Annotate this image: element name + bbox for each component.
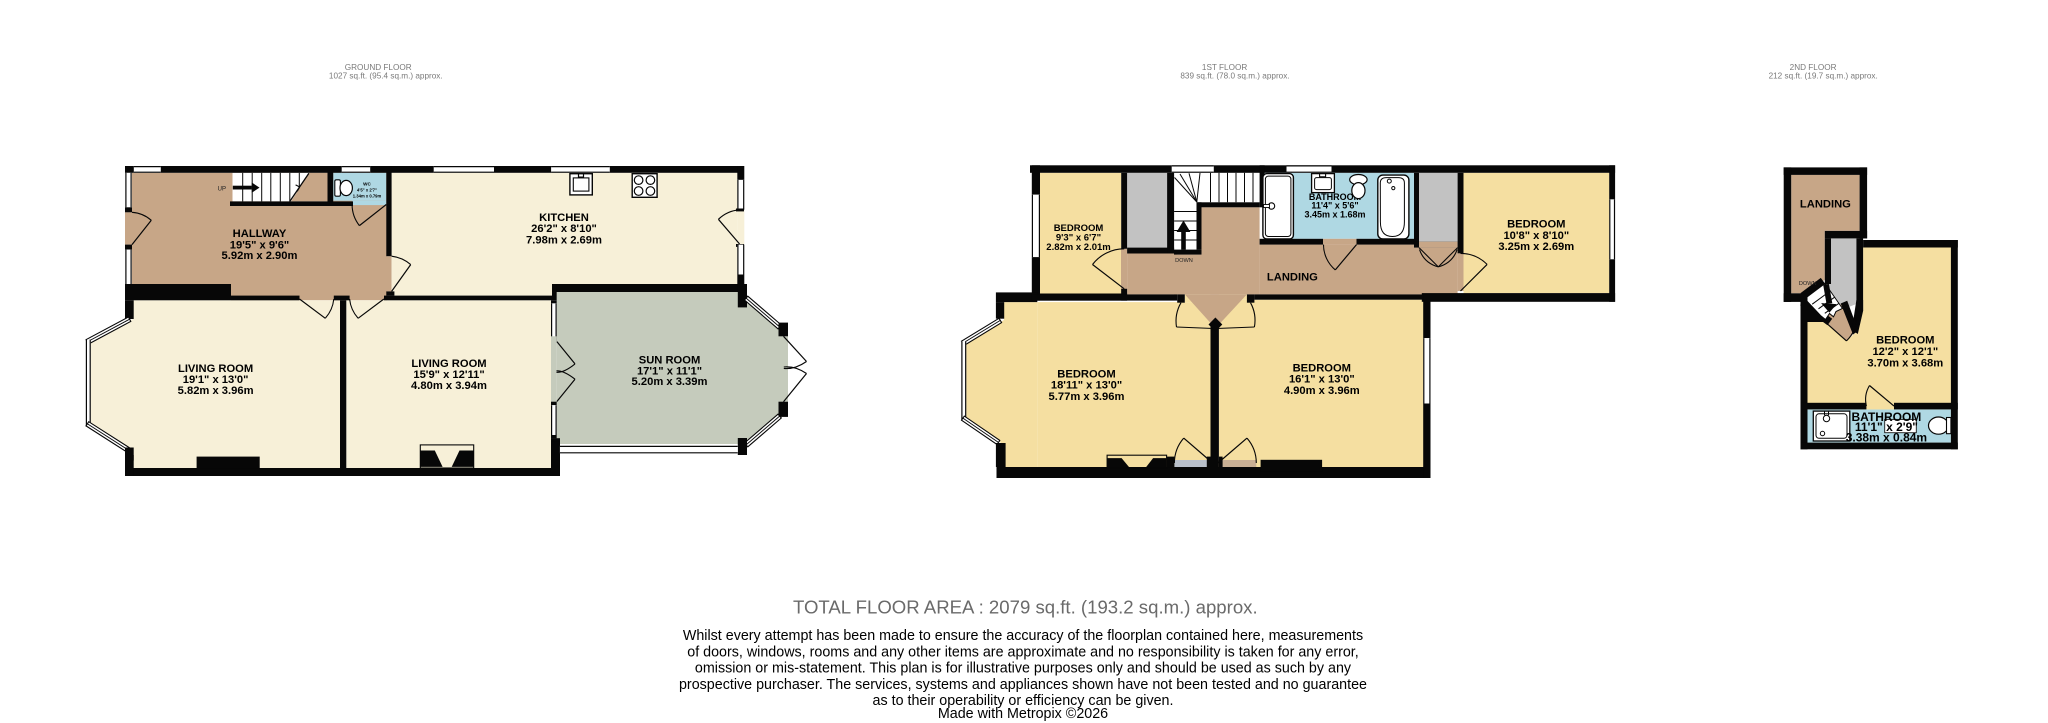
svg-text:1.34m x 0.79m: 1.34m x 0.79m [353, 194, 382, 199]
svg-text:7.98m x 2.69m: 7.98m x 2.69m [526, 234, 602, 246]
svg-text:3.45m x 1.68m: 3.45m x 1.68m [1304, 210, 1365, 220]
svg-text:10'8" x 8'10": 10'8" x 8'10" [1503, 230, 1569, 242]
svg-text:1027 sq.ft. (95.4 sq.m.) appro: 1027 sq.ft. (95.4 sq.m.) approx. [329, 71, 443, 80]
svg-text:DOWN: DOWN [1175, 258, 1193, 264]
svg-text:WC: WC [363, 182, 371, 187]
svg-text:LIVING ROOM: LIVING ROOM [178, 363, 253, 375]
svg-text:BEDROOM: BEDROOM [1293, 363, 1351, 375]
svg-text:18'11" x 13'0": 18'11" x 13'0" [1051, 380, 1122, 392]
svg-text:5.77m x 3.96m: 5.77m x 3.96m [1049, 391, 1125, 403]
svg-text:4'5" x 2'7": 4'5" x 2'7" [357, 188, 377, 193]
svg-text:3.25m x 2.69m: 3.25m x 2.69m [1498, 241, 1574, 253]
svg-text:26'2" x 8'10": 26'2" x 8'10" [531, 223, 597, 235]
svg-text:BEDROOM: BEDROOM [1057, 368, 1115, 380]
svg-text:12'2" x 12'1": 12'2" x 12'1" [1872, 346, 1938, 358]
svg-text:LANDING: LANDING [1267, 271, 1318, 283]
svg-text:BEDROOM: BEDROOM [1876, 335, 1934, 347]
svg-text:of doors, windows, rooms and a: of doors, windows, rooms and any other i… [687, 644, 1359, 660]
svg-text:prospective purchaser. The ser: prospective purchaser. The services, sys… [679, 677, 1367, 693]
svg-text:4.80m x 3.94m: 4.80m x 3.94m [411, 380, 487, 392]
svg-text:2.82m x 2.01m: 2.82m x 2.01m [1046, 242, 1110, 253]
svg-text:16'1" x 13'0": 16'1" x 13'0" [1289, 374, 1355, 386]
svg-text:3.38m x 0.84m: 3.38m x 0.84m [1846, 431, 1927, 445]
svg-text:Made with Metropix ©2026: Made with Metropix ©2026 [938, 706, 1108, 722]
svg-text:DOWN: DOWN [1799, 281, 1817, 287]
svg-text:UP: UP [218, 186, 226, 192]
svg-text:5.20m x 3.39m: 5.20m x 3.39m [632, 376, 708, 388]
svg-text:212 sq.ft. (19.7 sq.m.) approx: 212 sq.ft. (19.7 sq.m.) approx. [1769, 71, 1878, 80]
svg-text:HALLWAY: HALLWAY [233, 228, 287, 240]
svg-text:Whilst every attempt has been: Whilst every attempt has been made to en… [683, 628, 1363, 644]
svg-text:LIVING ROOM: LIVING ROOM [411, 358, 486, 370]
svg-text:4.90m x 3.96m: 4.90m x 3.96m [1284, 385, 1360, 397]
svg-text:5.82m x 3.96m: 5.82m x 3.96m [178, 385, 254, 397]
svg-text:LANDING: LANDING [1800, 199, 1851, 211]
svg-text:5.92m x 2.90m: 5.92m x 2.90m [222, 250, 298, 262]
svg-text:TOTAL FLOOR AREA : 2079 sq.ft.: TOTAL FLOOR AREA : 2079 sq.ft. (193.2 sq… [793, 597, 1258, 618]
svg-text:3.70m x 3.68m: 3.70m x 3.68m [1867, 358, 1943, 370]
svg-text:KITCHEN: KITCHEN [539, 212, 589, 224]
svg-text:BEDROOM: BEDROOM [1507, 219, 1565, 231]
svg-text:omission or mis-statement. Thi: omission or mis-statement. This plan is … [695, 661, 1352, 677]
svg-text:839 sq.ft. (78.0 sq.m.) approx: 839 sq.ft. (78.0 sq.m.) approx. [1180, 71, 1289, 80]
